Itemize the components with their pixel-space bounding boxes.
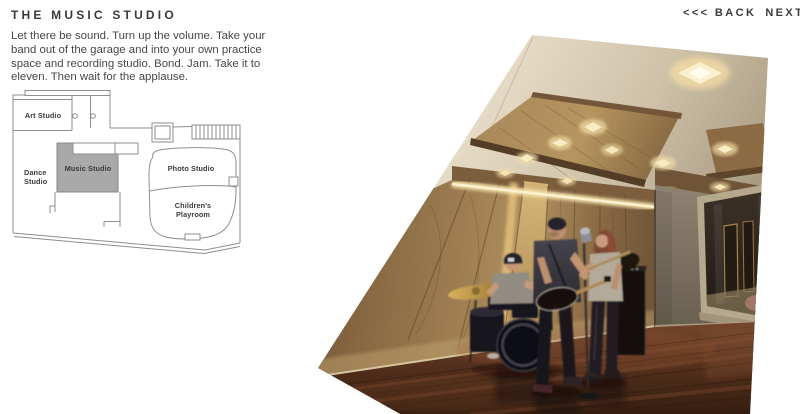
studio-photo — [0, 0, 800, 414]
observation-window — [697, 182, 783, 334]
photo-right-wall — [655, 182, 800, 334]
page: THE MUSIC STUDIO Let there be sound. Tur… — [0, 0, 800, 414]
